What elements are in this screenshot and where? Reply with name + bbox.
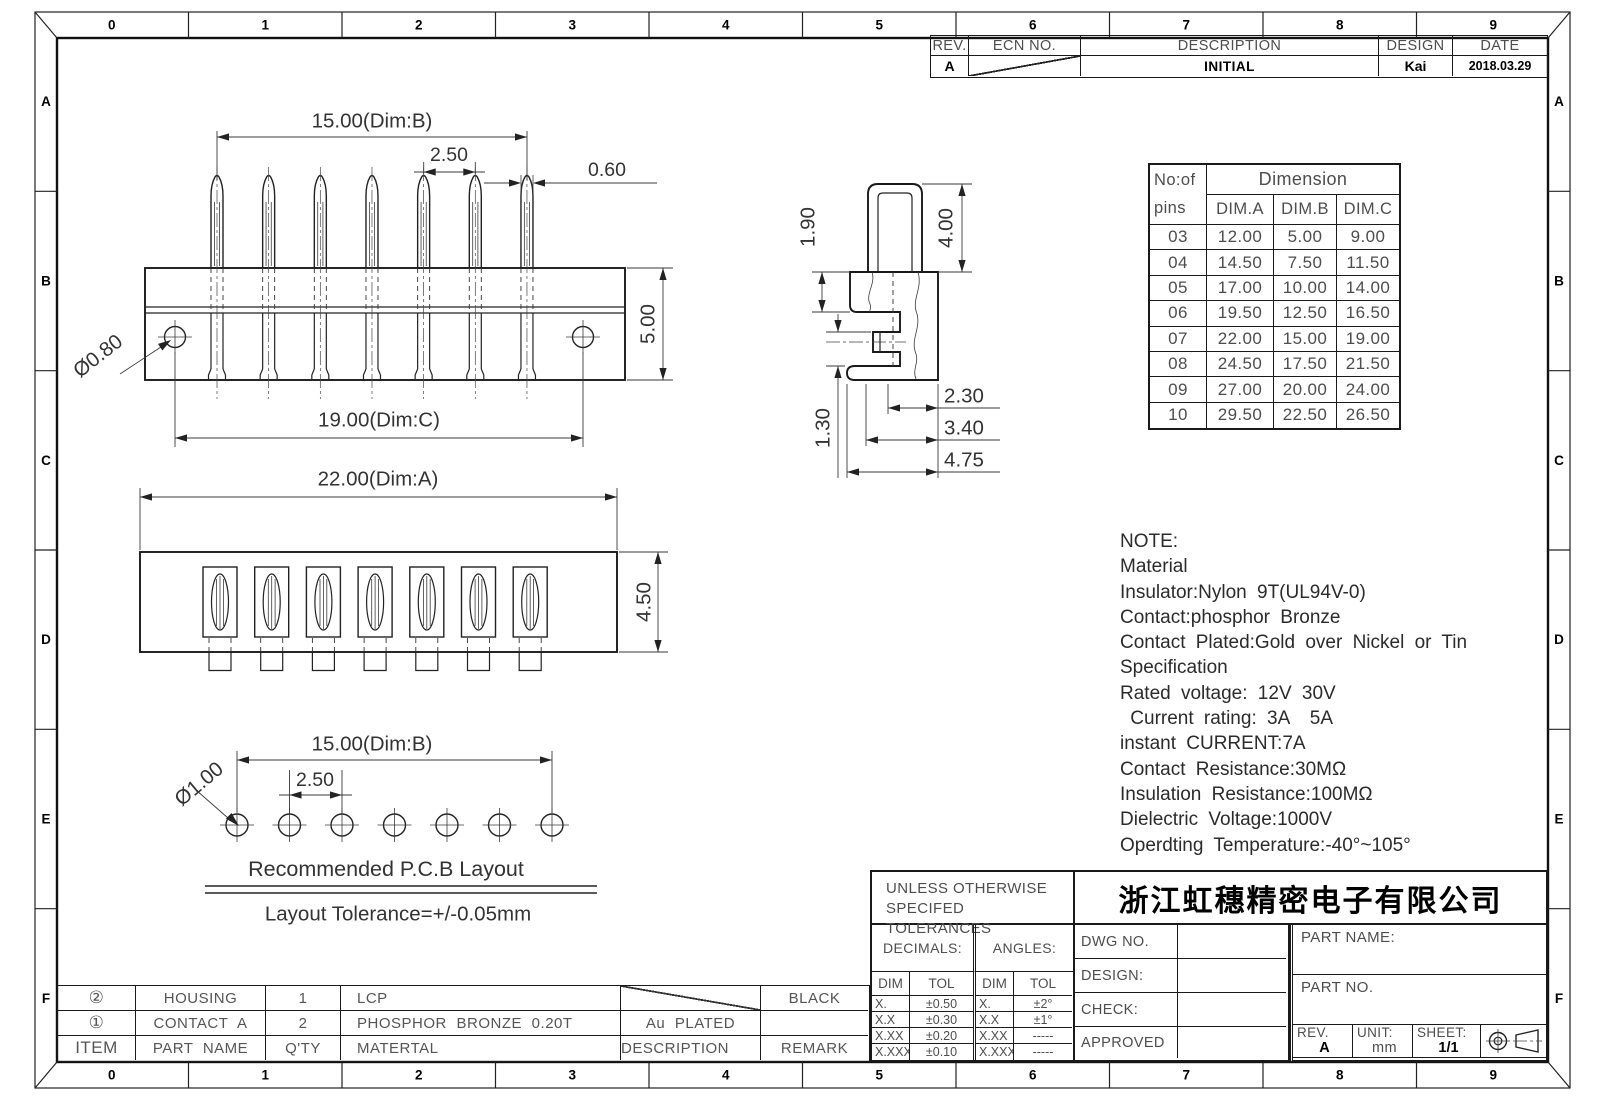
ruler-left-D: D (41, 632, 51, 647)
bom-header-cell: ITEM (58, 1036, 136, 1060)
tolerance-title: UNLESS OTHERWISE SPECIFED TOLERANCES (872, 872, 1073, 925)
ruler-right-E: E (1554, 812, 1563, 827)
rev-current-value: A (1297, 1040, 1352, 1056)
dim-table-cell: 17.00 (1207, 276, 1274, 301)
note-line: Rated voltage: 12V 30V (1120, 683, 1550, 708)
dim-table-cell: 22.00 (1207, 327, 1274, 352)
bom-cell: Au PLATED (621, 1011, 761, 1036)
dim-c-header: DIM.C (1337, 195, 1399, 225)
company-name-block: 浙江虹穗精密电子有限公司 (1075, 870, 1548, 925)
bom-header-cell: DESCRIPTION (621, 1036, 761, 1060)
rev-col-header: REV. (931, 36, 969, 56)
note-line: Current rating: 3A 5A (1120, 708, 1550, 733)
design-value: Kai (1379, 56, 1453, 76)
dim-table-cell: 22.50 (1274, 403, 1337, 428)
ruler-top-4: 4 (722, 18, 730, 33)
ruler-top-2: 2 (415, 18, 423, 33)
note-line: Material (1120, 556, 1550, 581)
pins-header-line1: No:of (1154, 166, 1206, 194)
ruler-bottom-4: 4 (722, 1068, 730, 1083)
description-value: INITIAL (1081, 56, 1379, 76)
dim-table-cell: 16.50 (1337, 301, 1399, 326)
ruler-top-0: 0 (108, 18, 116, 33)
ruler-left-F: F (42, 991, 50, 1006)
tol-dim-cell: X. (976, 996, 1014, 1012)
part-info-block: PART NAME: PART NO. REV. A UNIT: mm SHEE… (1290, 925, 1548, 1062)
bom-cell: HOUSING (136, 986, 266, 1011)
dim-table-cell: 10.00 (1274, 276, 1337, 301)
ruler-top-8: 8 (1336, 18, 1344, 33)
ruler-bottom-2: 2 (415, 1068, 423, 1083)
ruler-left-C: C (41, 453, 51, 468)
note-line: Contact Resistance:30MΩ (1120, 759, 1550, 784)
tol-tol-cell: ±2° (1014, 996, 1072, 1012)
pcb-layout-tolerance: Layout Tolerance=+/-0.05mm (265, 903, 531, 926)
dimension-arrows (140, 133, 966, 798)
ruler-bottom-9: 9 (1489, 1068, 1497, 1083)
dim-pcb-hole: Ø1.00 (170, 757, 228, 811)
dim-side-400: 4.00 (935, 208, 958, 248)
dim-table-cell: 11.50 (1337, 250, 1399, 275)
dim-side-340: 3.40 (944, 417, 984, 440)
ruler-top-1: 1 (261, 18, 269, 33)
bottom-view: 22.00(Dim:A) 4.50 (140, 468, 668, 671)
dim-table-cell: 14.00 (1337, 276, 1399, 301)
check-label: CHECK: (1075, 993, 1178, 1027)
dim-a-header: DIM.A (1207, 195, 1274, 225)
dim-top-b: 15.00(Dim:B) (312, 110, 433, 133)
dim-table-cell: 29.50 (1207, 403, 1274, 428)
bom-table: ②HOUSING1LCPBLACK①CONTACT A2PHOSPHOR BRO… (57, 985, 870, 1062)
dim-top-height: 5.00 (637, 304, 660, 344)
note-line: Contact Plated:Gold over Nickel or Tin (1120, 632, 1550, 657)
third-angle-projection-icon (1484, 1025, 1544, 1057)
dim-top-pin-width: 0.60 (588, 159, 626, 181)
decimals-tol-header: TOL (910, 972, 973, 996)
sheet-label: SHEET: (1417, 1025, 1480, 1040)
dim-pcb-pitch: 2.50 (296, 769, 334, 791)
tol-tol-cell: ±0.50 (910, 996, 973, 1012)
bom-cell (761, 1011, 868, 1036)
ruler-right-D: D (1554, 632, 1564, 647)
dim-table-cell: 9.00 (1337, 225, 1399, 250)
decimals-dim-header: DIM (872, 972, 910, 996)
dwg-no-label: DWG NO. (1075, 925, 1178, 959)
ruler-right-A: A (1554, 94, 1564, 109)
note-line: Specification (1120, 657, 1550, 682)
design-col-header: DESIGN (1379, 36, 1453, 56)
tol-tol-cell: ±0.10 (910, 1044, 973, 1060)
ruler-left-B: B (41, 274, 51, 289)
dim-side-230: 2.30 (944, 385, 984, 408)
note-line: Insulation Resistance:100MΩ (1120, 784, 1550, 809)
dim-table-cell: 5.00 (1274, 225, 1337, 250)
top-view: 15.00(Dim:B) 2.50 0.60 5.00 Ø0.80 (69, 110, 673, 448)
note-line: Dielectric Voltage:1000V (1120, 809, 1550, 834)
rev-value: A (931, 56, 969, 76)
dim-table-cell: 08 (1150, 352, 1207, 377)
ruler-top-9: 9 (1489, 18, 1497, 33)
bom-cell: PHOSPHOR BRONZE 0.20T (341, 1011, 621, 1036)
part-name-label: PART NAME: (1293, 925, 1546, 975)
design-value-empty (1178, 959, 1286, 993)
dim-table-cell: 12.50 (1274, 301, 1337, 326)
bom-header-cell: PART NAME (136, 1036, 266, 1060)
dim-top-pitch: 2.50 (430, 144, 468, 166)
note-line: NOTE: (1120, 531, 1550, 556)
dim-table-cell: 7.50 (1274, 250, 1337, 275)
rev-cell: REV. A (1293, 1025, 1353, 1058)
ruler-top-5: 5 (875, 18, 883, 33)
dimension-table: No:of pins Dimension DIM.A DIM.B DIM.C 0… (1148, 163, 1401, 430)
dim-bottom-a: 22.00(Dim:A) (318, 468, 439, 491)
note-line: Contact:phosphor Bronze (1120, 607, 1550, 632)
dim-side-475: 4.75 (944, 449, 984, 472)
dim-table-cell: 03 (1150, 225, 1207, 250)
note-line: Operdting Temperature:-40°~105° (1120, 835, 1550, 860)
tol-tol-cell: ±0.30 (910, 1012, 973, 1028)
unit-value: mm (1357, 1040, 1412, 1056)
dim-table-cell: 24.00 (1337, 377, 1399, 402)
bom-cell: BLACK (761, 986, 868, 1011)
pcb-layout-title: Recommended P.C.B Layout (248, 857, 524, 881)
dim-table-cell: 05 (1150, 276, 1207, 301)
dim-side-130: 1.30 (812, 408, 835, 448)
dimension-group-header: Dimension (1207, 165, 1399, 195)
dim-top-hole-dia: Ø0.80 (69, 330, 127, 383)
angles-dim-header: DIM (976, 972, 1014, 996)
part-no-label: PART NO. (1293, 975, 1546, 1025)
dim-b-header: DIM.B (1274, 195, 1337, 225)
bom-header-cell: Q'TY (266, 1036, 341, 1060)
ruler-bottom-5: 5 (875, 1068, 883, 1083)
ruler-right-B: B (1554, 274, 1564, 289)
company-name: 浙江虹穗精密电子有限公司 (1119, 876, 1503, 920)
angles-table: DIM TOL X.±2°X.X±1°X.XX-----X.XXX----- (973, 972, 1073, 1060)
decimals-label: DECIMALS: (872, 925, 973, 972)
note-line: Insulator:Nylon 9T(UL94V-0) (1120, 582, 1550, 607)
ruler-right-F: F (1555, 991, 1563, 1006)
decimals-table: DIM TOL X.±0.50X.X±0.30X.XX±0.20X.XXX±0.… (872, 972, 973, 1060)
tol-dim-cell: X.XXX (872, 1044, 910, 1060)
tol-dim-cell: X. (872, 996, 910, 1012)
dim-table-cell: 12.00 (1207, 225, 1274, 250)
dim-table-cell: 20.00 (1274, 377, 1337, 402)
ruler-top-6: 6 (1029, 18, 1037, 33)
ecn-col-header: ECN NO. (969, 36, 1081, 56)
description-col-header: DESCRIPTION (1081, 36, 1379, 56)
engineering-drawing-sheet: 00112233445566778899AABBCCDDEEFF 15.00(D… (0, 0, 1605, 1100)
dim-table-cell: 19.00 (1337, 327, 1399, 352)
dim-top-c: 19.00(Dim:C) (318, 409, 440, 432)
dim-table-cell: 21.50 (1337, 352, 1399, 377)
revision-table: REV. ECN NO. DESCRIPTION DESIGN DATE A I… (930, 35, 1548, 78)
ruler-right-C: C (1554, 453, 1564, 468)
tol-tol-cell: ----- (1014, 1028, 1072, 1044)
dim-table-cell: 26.50 (1337, 403, 1399, 428)
ecn-value-empty (969, 56, 1081, 76)
approved-value-empty (1178, 1027, 1286, 1058)
dim-table-cell: 27.00 (1207, 377, 1274, 402)
ruler-bottom-3: 3 (568, 1068, 576, 1083)
tol-tol-cell: ±0.20 (910, 1028, 973, 1044)
ruler-left-E: E (41, 812, 50, 827)
rev-label: REV. (1297, 1025, 1352, 1040)
dim-table-cell: 24.50 (1207, 352, 1274, 377)
dim-table-cell: 14.50 (1207, 250, 1274, 275)
dim-table-cell: 10 (1150, 403, 1207, 428)
tol-tol-cell: ±1° (1014, 1012, 1072, 1028)
tol-dim-cell: X.XXX (976, 1044, 1014, 1060)
ruler-bottom-0: 0 (108, 1068, 116, 1083)
tol-dim-cell: X.X (872, 1012, 910, 1028)
notes-block: NOTE:MaterialInsulator:Nylon 9T(UL94V-0)… (1120, 531, 1550, 860)
approved-label: APPROVED (1075, 1027, 1178, 1058)
bom-cell: LCP (341, 986, 621, 1011)
pcb-layout-view: 15.00(Dim:B) 2.50 Ø1.00 Recommended P.C.… (170, 733, 597, 926)
dim-table-cell: 07 (1150, 327, 1207, 352)
unit-label: UNIT: (1357, 1025, 1412, 1040)
unit-cell: UNIT: mm (1353, 1025, 1413, 1058)
dim-table-cell: 19.50 (1207, 301, 1274, 326)
bom-cell: CONTACT A (136, 1011, 266, 1036)
date-col-header: DATE (1453, 36, 1547, 56)
bom-cell: ② (58, 986, 136, 1011)
ruler-bottom-1: 1 (261, 1068, 269, 1083)
tolerance-title-line1: UNLESS OTHERWISE (886, 879, 1073, 899)
date-value: 2018.03.29 (1453, 56, 1547, 76)
projection-symbol-cell (1481, 1025, 1546, 1058)
ruler-top-7: 7 (1182, 18, 1190, 33)
bom-cell (621, 986, 761, 1011)
dim-table-cell: 09 (1150, 377, 1207, 402)
ruler-bottom-7: 7 (1182, 1068, 1190, 1083)
pins-header-cell: No:of pins (1150, 165, 1207, 225)
ruler-bottom-6: 6 (1029, 1068, 1037, 1083)
pins-header-line2: pins (1154, 194, 1206, 222)
tol-dim-cell: X.XX (872, 1028, 910, 1044)
check-value-empty (1178, 993, 1286, 1027)
dwg-no-value-empty (1178, 925, 1286, 959)
bom-cell: 2 (266, 1011, 341, 1036)
bom-header-cell: REMARK (761, 1036, 868, 1060)
dim-table-cell: 04 (1150, 250, 1207, 275)
ruler-bottom-8: 8 (1336, 1068, 1344, 1083)
bom-header-cell: MATERTAL (341, 1036, 621, 1060)
tol-dim-cell: X.X (976, 1012, 1014, 1028)
tol-dim-cell: X.XX (976, 1028, 1014, 1044)
bom-cell: ① (58, 1011, 136, 1036)
dim-table-cell: 17.50 (1274, 352, 1337, 377)
tolerance-block: UNLESS OTHERWISE SPECIFED TOLERANCES DEC… (870, 870, 1075, 1062)
dim-pcb-b: 15.00(Dim:B) (312, 733, 433, 756)
dim-table-cell: 15.00 (1274, 327, 1337, 352)
angles-label: ANGLES: (973, 925, 1073, 972)
design-label: DESIGN: (1075, 959, 1178, 993)
approval-block: DWG NO. DESIGN: CHECK: APPROVED (1075, 925, 1290, 1062)
dim-side-190: 1.90 (797, 207, 820, 247)
tol-tol-cell: ----- (1014, 1044, 1072, 1060)
side-view: 1.90 4.00 1.30 2.30 3.40 4.75 (797, 184, 1001, 478)
dim-bottom-height: 4.50 (633, 582, 656, 622)
angles-tol-header: TOL (1014, 972, 1072, 996)
sheet-value: 1/1 (1417, 1040, 1480, 1056)
sheet-cell: SHEET: 1/1 (1413, 1025, 1481, 1058)
ruler-top-3: 3 (568, 18, 576, 33)
dim-table-cell: 06 (1150, 301, 1207, 326)
ruler-left-A: A (41, 94, 51, 109)
bom-cell: 1 (266, 986, 341, 1011)
note-line: instant CURRENT:7A (1120, 733, 1550, 758)
